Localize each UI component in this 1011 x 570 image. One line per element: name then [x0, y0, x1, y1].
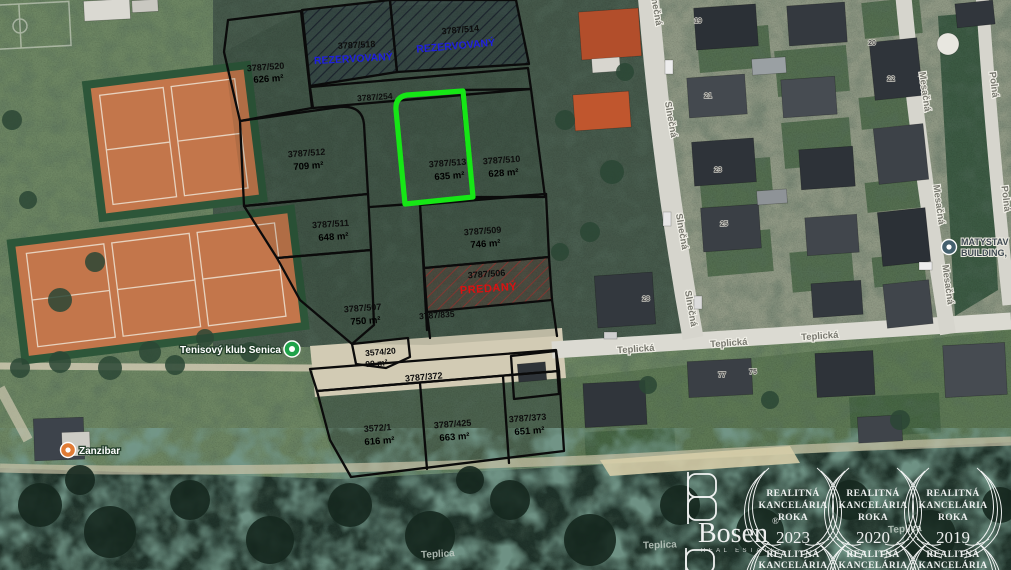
- map-canvas[interactable]: 3787/520 626 m² 3787/518 REZERVOVANÝ 378…: [0, 0, 1011, 570]
- house-number-22: 22: [887, 76, 895, 83]
- parcel-label-425-area: 663 m²: [439, 431, 470, 444]
- parcel-label-511-area: 648 m²: [318, 231, 349, 244]
- house-number-23: 23: [714, 167, 722, 174]
- house-number-77: 77: [718, 372, 726, 379]
- parcel-label-520-area: 626 m²: [253, 73, 284, 86]
- award-title-line1: REALITNÁ: [846, 487, 899, 499]
- house-number-19: 19: [694, 18, 702, 25]
- award-title-line2: KANCELÁRIA: [759, 499, 828, 511]
- award-year-2019: 2019: [936, 528, 970, 547]
- award-title-line3: ROKA: [858, 513, 888, 523]
- award-title-line3: ROKA: [778, 513, 808, 523]
- award-title-line2: KANCELÁRIA: [759, 559, 828, 570]
- award-title-line2: KANCELÁRIA: [839, 499, 908, 511]
- award-title-line1: REALITNÁ: [766, 548, 819, 560]
- satellite-map: 3787/520 626 m² 3787/518 REZERVOVANÝ 378…: [0, 0, 1011, 570]
- river-label-1: Teplica: [421, 548, 456, 561]
- award-title-line1: REALITNÁ: [766, 487, 819, 499]
- parcel-label-513-area: 635 m²: [434, 170, 465, 183]
- award-title-line2: KANCELÁRIA: [919, 499, 988, 511]
- parcel-label-3574-area: 99 m²: [365, 357, 388, 369]
- parcel-label-512-area: 709 m²: [293, 160, 324, 173]
- award-title-line2: KANCELÁRIA: [839, 559, 908, 570]
- parcel-label-3572-id: 3572/1: [364, 422, 392, 434]
- award-year-2023: 2023: [776, 528, 810, 547]
- parcel-label-507-area: 750 m²: [350, 315, 381, 328]
- house-number-28: 28: [642, 296, 650, 303]
- house-number-25: 25: [720, 221, 728, 228]
- parcel-label-373-area: 651 m²: [514, 425, 545, 438]
- poi-label-matystav-2: BUILDING,: [961, 248, 1007, 258]
- parcel-label-3572-area: 616 m²: [364, 435, 395, 448]
- house-number-20: 20: [868, 40, 876, 47]
- poi-label-tennis: Tenisový klub Senica: [180, 345, 281, 356]
- restaurant-marker-icon[interactable]: [61, 443, 76, 458]
- award-title-line1: REALITNÁ: [926, 548, 979, 560]
- award-year-2020: 2020: [856, 528, 890, 547]
- poi-label-matystav-1: MATYSTAV: [961, 237, 1009, 247]
- house-number-75: 75: [749, 369, 757, 376]
- parcel-label-510-area: 628 m²: [488, 167, 519, 180]
- award-title-line1: REALITNÁ: [926, 487, 979, 499]
- river-label-2: Teplica: [643, 539, 678, 551]
- parcel-label-509-area: 746 m²: [470, 238, 501, 251]
- award-title-line2: KANCELÁRIA: [919, 559, 988, 570]
- award-title-line1: REALITNÁ: [846, 548, 899, 560]
- parcel-label-518-id: 3787/518: [338, 39, 376, 51]
- parcel-3787-514: [390, 0, 529, 72]
- tennis-marker-icon[interactable]: [284, 341, 300, 357]
- award-title-line3: ROKA: [938, 513, 968, 523]
- building-marker-icon[interactable]: [942, 240, 957, 255]
- poi-label-zanzibar: Zanzibar: [79, 446, 120, 457]
- house-number-21: 21: [704, 93, 712, 100]
